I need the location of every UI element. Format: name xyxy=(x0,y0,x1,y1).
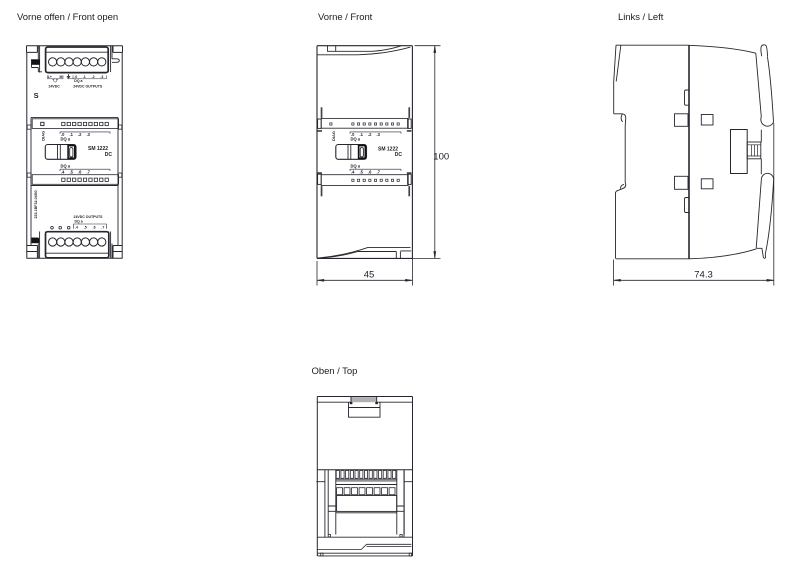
svg-text:.7: .7 xyxy=(101,225,104,229)
svg-text:M: M xyxy=(60,75,63,79)
svg-text:.4: .4 xyxy=(351,169,355,174)
svg-text:.1: .1 xyxy=(70,132,74,137)
svg-text:DC: DC xyxy=(105,152,113,158)
svg-text:Links / Left: Links / Left xyxy=(618,12,664,23)
svg-text:X11: X11 xyxy=(32,238,40,243)
svg-text:24VDC OUTPUTS: 24VDC OUTPUTS xyxy=(74,215,104,219)
svg-text:.1: .1 xyxy=(360,132,364,137)
svg-text:DQ a: DQ a xyxy=(351,163,361,168)
svg-text:DQ a: DQ a xyxy=(75,220,83,224)
svg-text:.7: .7 xyxy=(377,169,381,174)
svg-text:DQ a: DQ a xyxy=(351,137,361,142)
svg-text:.4: .4 xyxy=(75,225,78,229)
svg-text:DC: DC xyxy=(395,152,403,158)
svg-text:Vorne / Front: Vorne / Front xyxy=(318,12,373,23)
svg-text:S: S xyxy=(34,91,39,100)
svg-text:DQ a: DQ a xyxy=(74,79,82,83)
svg-text:.2: .2 xyxy=(78,132,82,137)
svg-text:Oben / Top: Oben / Top xyxy=(312,366,358,377)
svg-text:.6: .6 xyxy=(93,225,96,229)
svg-text:223-1BF32-0XB0: 223-1BF32-0XB0 xyxy=(34,190,38,218)
svg-text:X10: X10 xyxy=(32,60,40,65)
svg-text:.2: .2 xyxy=(92,75,95,79)
svg-text:.6: .6 xyxy=(368,169,372,174)
svg-text:.2: .2 xyxy=(368,132,372,137)
svg-text:45: 45 xyxy=(364,269,375,280)
svg-text:Vorne offen / Front open: Vorne offen / Front open xyxy=(17,12,118,23)
svg-text:.3: .3 xyxy=(87,132,91,137)
svg-text:.4: .4 xyxy=(61,169,65,174)
svg-text:.7: .7 xyxy=(87,169,91,174)
svg-text:.6: .6 xyxy=(78,169,82,174)
svg-text:.5: .5 xyxy=(84,225,87,229)
svg-text:.3: .3 xyxy=(377,132,381,137)
svg-text:.5: .5 xyxy=(70,169,74,174)
svg-text:24VDC OUTPUTS: 24VDC OUTPUTS xyxy=(73,85,103,89)
svg-text:.1: .1 xyxy=(83,75,86,79)
svg-text:100: 100 xyxy=(433,152,449,163)
svg-text:.3: .3 xyxy=(100,75,103,79)
svg-text:DIAG: DIAG xyxy=(331,131,336,141)
svg-text:DIAG: DIAG xyxy=(41,131,46,141)
svg-text:24VDC: 24VDC xyxy=(49,85,61,89)
svg-text:DQ a: DQ a xyxy=(61,137,71,142)
svg-text:SM 1222: SM 1222 xyxy=(88,146,108,152)
svg-text:74.3: 74.3 xyxy=(694,269,713,280)
svg-text:.5: .5 xyxy=(360,169,364,174)
svg-text:DQ a: DQ a xyxy=(61,163,71,168)
svg-text:L+: L+ xyxy=(48,75,52,79)
